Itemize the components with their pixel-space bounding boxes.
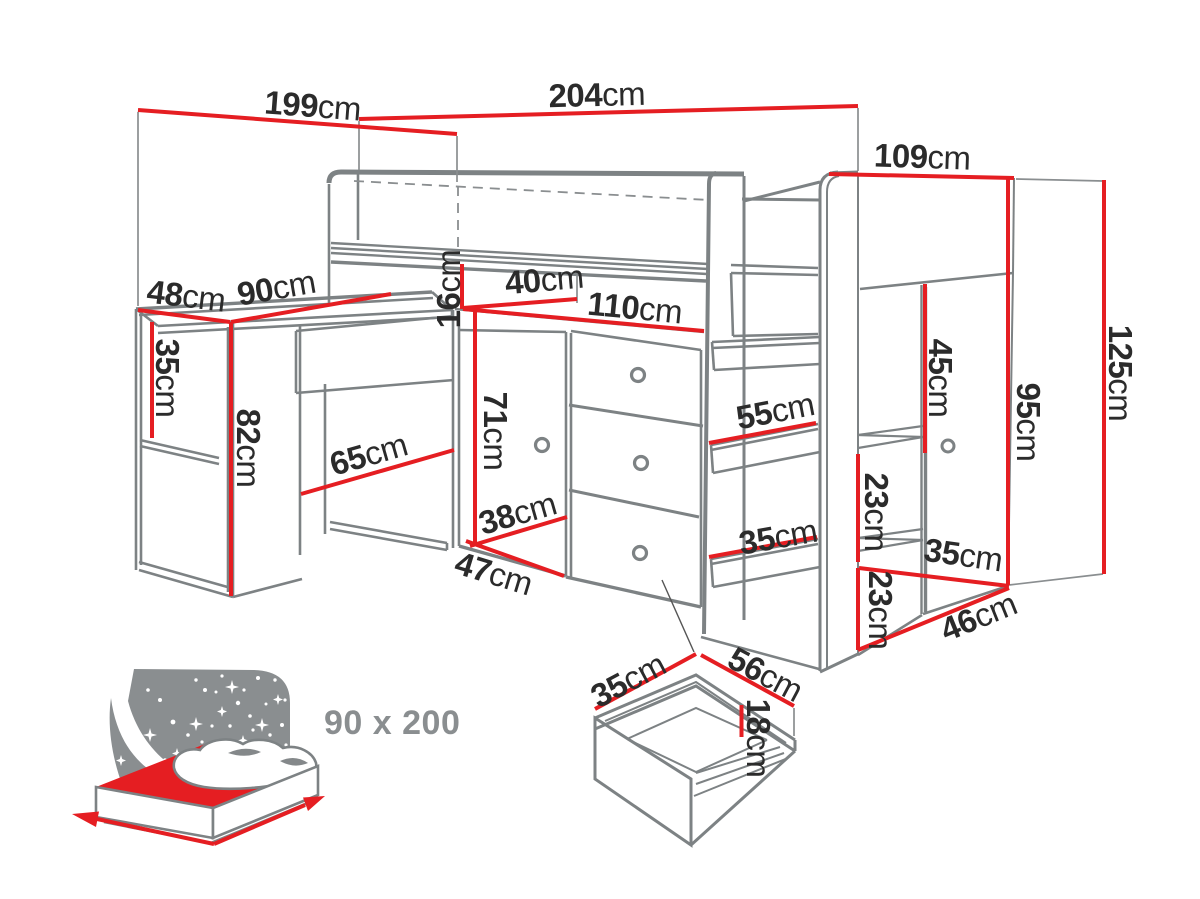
svg-text:23cm: 23cm [862, 571, 899, 650]
svg-text:204cm: 204cm [548, 75, 645, 115]
svg-text:125cm: 125cm [1102, 325, 1139, 422]
svg-text:40cm: 40cm [503, 258, 585, 302]
svg-text:109cm: 109cm [873, 136, 971, 176]
svg-text:16cm: 16cm [430, 250, 467, 329]
svg-text:199cm: 199cm [263, 83, 362, 127]
svg-text:45cm: 45cm [922, 339, 959, 418]
svg-text:23cm: 23cm [858, 473, 895, 552]
svg-text:35cm: 35cm [149, 339, 186, 418]
svg-text:82cm: 82cm [230, 409, 267, 488]
svg-text:95cm: 95cm [1010, 383, 1047, 462]
svg-text:71cm: 71cm [477, 392, 514, 471]
svg-text:18cm: 18cm [740, 699, 777, 778]
svg-text:90 x 200: 90 x 200 [324, 704, 460, 742]
